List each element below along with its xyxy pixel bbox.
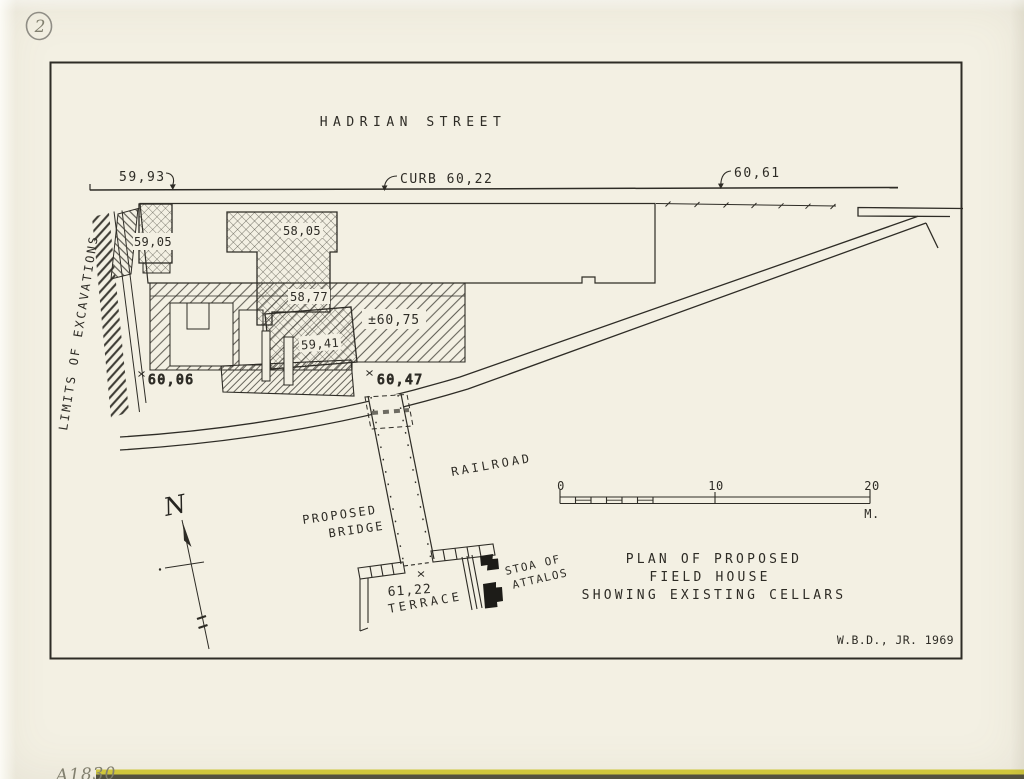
scale-unit: M.: [864, 507, 879, 521]
north-arrow: N: [159, 489, 209, 649]
sheet-number: 2: [34, 17, 46, 37]
bottom-edge-strip-yellow: [96, 770, 1024, 775]
leader-curl-left: [166, 173, 174, 186]
scale-zero: 0: [557, 479, 565, 493]
wall-slot-1: [262, 331, 270, 381]
railroad-label: RAILROAD: [450, 451, 533, 479]
railroad-right-structure: [858, 208, 963, 217]
cellar-59-41: 59,41: [265, 307, 357, 369]
stoa-anta-block-lower: [483, 582, 503, 609]
cellar-59-05: 59,05: [133, 204, 173, 273]
bottom-edge-strip-dark: [96, 775, 1024, 779]
north-arrow-tail-ticks: [197, 616, 208, 628]
title-line1: PLAN OF PROPOSED: [626, 552, 802, 567]
stoa-terrace-lines: [462, 555, 482, 610]
limits-label: LIMITS OF EXCAVATIONS: [56, 234, 101, 432]
curb-elevation-center: CURB 60,22: [400, 172, 493, 187]
signature: W.B.D., JR. 1969: [837, 633, 954, 647]
street-name-label: HADRIAN STREET: [320, 115, 507, 130]
sheet-number-circled: 2: [25, 11, 54, 41]
cellar-58-77-label: 58,77: [290, 290, 328, 304]
drawing-title: PLAN OF PROPOSED FIELD HOUSE SHOWING EXI…: [582, 552, 847, 603]
leader-curl-center: [385, 176, 398, 187]
stoa-anta-block-upper: [480, 554, 499, 571]
north-arrow-dot: [159, 568, 161, 570]
leader-arrow-center: [382, 185, 388, 191]
spot-60-06-label: 60,06: [148, 373, 195, 388]
building-block-group: 59,05 58,05 58,77 59,41 ±60,75: [111, 204, 655, 397]
archive-code-handwritten: A1830: [53, 764, 116, 779]
curb-elevation-left: 59,93: [119, 170, 166, 185]
room-cutout-1: [170, 303, 233, 366]
site-plan-drawing: 2 HADRIAN STREET 59,93 CURB 60,22 60,61 …: [0, 0, 1024, 779]
title-line3: SHOWING EXISTING CELLARS: [582, 588, 847, 603]
scale-twenty: 20: [864, 479, 879, 493]
spot-marker-61-22: [418, 572, 424, 577]
scanned-plan-sheet: 2 HADRIAN STREET 59,93 CURB 60,22 60,61 …: [0, 0, 1024, 779]
bridge-deck-mask: [368, 394, 434, 566]
scale-bar: 0 10 20 M.: [557, 479, 880, 521]
spot-marker-60-47: [367, 371, 373, 376]
leader-curl-right: [721, 171, 731, 185]
title-line2: FIELD HOUSE: [649, 570, 770, 585]
terrace-wall-return: [360, 578, 368, 631]
north-arrow-crossbar: [165, 562, 204, 568]
cellar-59-05-label: 59,05: [134, 235, 172, 249]
bridge-label: PROPOSED BRIDGE: [301, 502, 385, 544]
survey-tick-line: [656, 202, 836, 210]
spot-marker-60-06: [139, 372, 145, 377]
curb-elevation-right: 60,61: [734, 166, 781, 181]
stoa-label: STOA OF ATTALOS: [504, 552, 570, 593]
spot-60-47-label: 60,47: [377, 373, 424, 388]
scale-ten: 10: [708, 479, 723, 493]
cellar-59-41-label: 59,41: [301, 336, 340, 353]
building-upper-band: [140, 204, 655, 284]
wall-slot-2: [284, 337, 293, 385]
stoa-group: STOA OF ATTALOS: [462, 552, 569, 610]
spot-60-75-label: ±60,75: [368, 313, 420, 328]
proposed-bridge-group: PROPOSED BRIDGE: [301, 394, 434, 566]
curb-line-group: 59,93 CURB 60,22 60,61: [90, 166, 898, 191]
curb-line: [90, 188, 898, 191]
cellar-58-05-label: 58,05: [283, 224, 321, 238]
railroad-spur-stub: [926, 223, 938, 248]
north-letter: N: [160, 489, 190, 522]
